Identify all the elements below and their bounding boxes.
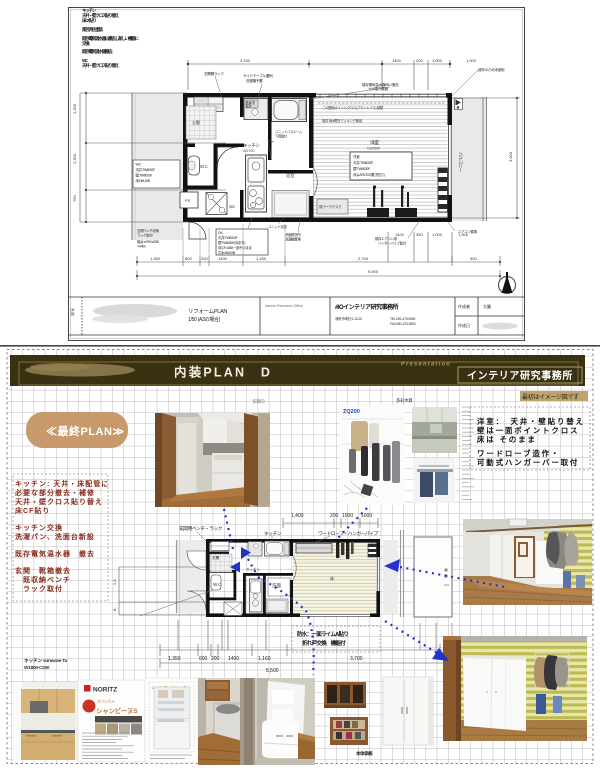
svg-text:本体価格: 本体価格 [356,750,373,757]
svg-text:リフォームPLAN: リフォームPLAN [188,308,227,315]
svg-text:玄関 靴箱撤去: 玄関 靴箱撤去 [15,566,71,575]
svg-text:大圖: 大圖 [483,303,491,309]
svg-text:既存電気温水器 撤去: 既存電気温水器 撤去 [15,549,95,558]
svg-text:×H400: ×H400 [137,245,146,249]
svg-text:天井:TW6002F: 天井:TW6002F [136,167,156,172]
svg-text:バルコニー: バルコニー [458,152,463,173]
svg-text:玄関棚ラック: 玄関棚ラック [204,71,224,76]
svg-text:8..: 8.. [112,607,117,611]
svg-text:作成日: 作成日 [458,322,470,328]
svg-text:1,000: 1,000 [466,58,477,63]
svg-text:1,160: 1,160 [256,256,267,261]
svg-text:既ワークデスク: 既ワークデスク [319,204,342,209]
svg-text:壁:TW6001K: 壁:TW6001K [136,173,153,178]
svg-text:玄関: 玄関 [212,555,220,560]
svg-text:浴室: 浴室 [286,172,294,179]
svg-text:WC: WC [136,163,142,167]
svg-text:内装PLAN D: 内装PLAN D [174,365,272,380]
svg-text:CH2500: CH2500 [367,147,380,151]
svg-text:ワードローブ・ハンガーパイプ: ワードローブ・ハンガーパイプ [318,530,379,537]
svg-text:インテリア研究事務所: インテリア研究事務所 [467,369,573,382]
svg-text:1,350: 1,350 [150,256,161,261]
svg-text:760: 760 [72,195,77,202]
svg-text:1,300: 1,300 [72,103,77,114]
svg-text:1,000: 1,000 [458,232,469,237]
svg-text:可動式ハンガーバー取付: 可動式ハンガーバー取付 [477,457,579,467]
svg-text:壁:TW6030F: 壁:TW6030F [353,166,371,171]
svg-text:シャンビーヌS: シャンビーヌS [96,706,138,715]
svg-text:既存エアコン用: 既存エアコン用 [375,236,397,241]
svg-text:3,700: 3,700 [350,656,363,662]
svg-text:床CF貼り: 床CF貼り [15,506,50,515]
svg-text:洗濯機置場: 洗濯機置場 [285,237,301,242]
svg-text:風呂 再生塗装: 風呂 再生塗装 [82,26,104,33]
svg-text:キッチン: 天井・床配管に: キッチン: 天井・床配管に [15,479,109,488]
svg-text:1400: 1400 [392,58,402,63]
svg-text:2,700: 2,700 [358,256,369,261]
svg-text:洗濯機予置: 洗濯機予置 [246,78,263,83]
svg-text:既存電気温水器は撤去し新しい機器に: 既存電気温水器は撤去し新しい機器に [82,35,140,42]
svg-text:経年のため未使用: 経年のため未使用 [478,67,505,72]
svg-text:1,350: 1,350 [168,656,181,662]
svg-text:ラック取付: ラック取付 [137,233,153,238]
svg-text:既存 両of開きクッキング使用: 既存 両of開きクッキング使用 [322,118,362,123]
svg-text:下関取付: 下関取付 [275,134,288,139]
svg-text:既収納ベンチ: 既収納ベンチ [15,575,71,584]
svg-text:天井:TW6002F: 天井:TW6002F [353,160,374,165]
svg-text:天井・壁クロス貼り替え: 天井・壁クロス貼り替え [15,497,103,506]
svg-text:1,000: 1,000 [432,232,443,237]
svg-text:200: 200 [330,513,339,519]
svg-text:天井:TW6002F: 天井:TW6002F [218,235,238,240]
svg-text:600: 600 [185,256,192,261]
svg-text:350: 350 [416,232,423,237]
svg-text:ハンガーパイプ取付: ハンガーパイプ取付 [378,241,407,246]
svg-text:#IOインテリア研究事務所: #IOインテリア研究事務所 [335,303,399,311]
svg-text:1400: 1400 [228,656,239,662]
svg-text:壁:TW6030F(派あり): 壁:TW6030F(派あり) [218,240,245,245]
svg-text:TEL:051-474-0592: TEL:051-474-0592 [390,317,415,321]
svg-text:既存電気温水器撤去: 既存電気温水器撤去 [82,48,113,55]
svg-text:キッチン: キッチン [246,567,260,572]
svg-text:1000: 1000 [342,513,353,519]
svg-text:≪最終PLAN≫: ≪最終PLAN≫ [46,424,124,438]
svg-text:巾木:HM-008: 巾木:HM-008 [218,250,235,255]
svg-text:玄関ベンチ収納: 玄関ベンチ収納 [137,228,160,233]
svg-text:W1800-C200: W1800-C200 [24,665,50,671]
svg-text:1,400: 1,400 [291,513,304,519]
svg-text:W2700: W2700 [243,149,254,153]
svg-text:洗濯パン、洗面台新設: 洗濯パン、洗面台新設 [15,532,95,541]
svg-text:名前: 名前 [70,308,76,316]
svg-text:キッチン: キッチン [243,143,260,148]
svg-text:ZQ200: ZQ200 [343,409,360,415]
svg-text:200: 200 [211,656,220,662]
svg-text:床:HM-10B: 床:HM-10B [136,178,151,183]
svg-text:防水：一面ライムA貼り: 防水：一面ライムA貼り [297,630,348,638]
svg-text:200: 200 [416,58,423,63]
svg-text:3,000: 3,000 [508,151,513,162]
svg-text:ラック取付: ラック取付 [15,584,63,593]
svg-text:作成者: 作成者 [458,303,470,309]
svg-text:3,150: 3,150 [240,58,251,63]
svg-text:床は そのまま: 床は そのまま [477,434,537,444]
svg-text:NORITZ: NORITZ [93,687,117,694]
svg-text:面台: 面台 [246,104,252,109]
svg-text:床 CF貼り: 床 CF貼り [82,17,96,24]
svg-text:565: 565 [229,205,235,209]
svg-text:1400: 1400 [218,256,228,261]
svg-text:1,300: 1,300 [72,153,77,164]
svg-text:必要な部分撤去・補修: 必要な部分撤去・補修 [14,488,95,497]
svg-text:1400: 1400 [395,232,405,237]
svg-text:多目的: 多目的 [252,398,265,405]
svg-text:2,5..: 2,5.. [112,577,117,585]
svg-text:浦安市明日1-13-20: 浦安市明日1-13-20 [335,316,362,321]
svg-text:サイドテーブル置例: サイドテーブル置例 [243,73,273,78]
svg-text:玄関用ベンチ・ラック: 玄関用ベンチ・ラック [179,525,223,532]
svg-text:1,000: 1,000 [432,58,443,63]
svg-text:9,500: 9,500 [368,269,379,274]
svg-text:PS: PS [185,198,191,203]
svg-text:Presentation: Presentation [401,362,451,368]
svg-text:FAX:051-474-0593: FAX:051-474-0593 [390,322,416,326]
svg-text:1,160: 1,160 [258,656,271,662]
svg-text:DK: DK [218,231,224,235]
svg-text:600: 600 [199,656,208,662]
svg-text:ユニットバスルーム: ユニットバスルーム [275,129,303,134]
svg-text:洗面: 洗面 [272,582,281,589]
svg-text:オリジナル: オリジナル [97,699,115,704]
svg-text:洋室: 洋室 [370,139,379,146]
svg-text:九州電力電器: 九州電力電器 [368,86,388,91]
svg-text:床:(LAYNTXX置き貼り): 床:(LAYNTXX置き貼り) [353,172,385,177]
svg-text:1/50 (A3の場合): 1/50 (A3の場合) [188,316,221,323]
svg-text:キッチン交換: キッチン交換 [15,523,63,532]
svg-text:天井・壁 クロス貼り替え: 天井・壁 クロス貼り替え [82,62,120,69]
svg-text:この壁面ポイントクロス(プラントバス) 貼替: この壁面ポイントクロス(プラントバス) 貼替 [322,105,384,110]
svg-text:洋室： 天井・壁貼り替え: 洋室： 天井・壁貼り替え [477,416,585,426]
svg-text:Interior Research Office: Interior Research Office [265,304,303,308]
svg-text:キッチン: キッチン [264,531,282,537]
svg-text:洗面脱衣所: 洗面脱衣所 [285,232,301,237]
svg-text:踏台:w750×d250: 踏台:w750×d250 [137,239,159,244]
svg-text:土間: 土間 [192,120,200,125]
svg-text:壁は一面ポイントクロス: 壁は一面ポイントクロス [477,425,579,435]
svg-text:W.C: W.C [213,582,222,587]
svg-text:床:CF-4438 一部そのまま: 床:CF-4438 一部そのまま [218,245,253,250]
svg-text:W.C: W.C [200,164,208,169]
svg-text:折れ戸交換 機能付: 折れ戸交換 機能付 [302,639,346,647]
svg-text:洋室: 洋室 [353,154,360,159]
svg-text:200: 200 [201,256,208,261]
svg-text:900: 900 [470,256,477,261]
svg-text:多彩木目: 多彩木目 [396,397,412,404]
svg-text:5,500: 5,500 [266,668,279,674]
svg-text:ワードローブ造作・: ワードローブ造作・ [477,448,560,458]
svg-text:床: 床 [330,575,334,581]
svg-text:キッチン sunwave Ta: キッチン sunwave Ta [24,658,67,664]
svg-text:最初はイメージ図です: 最初はイメージ図です [522,393,579,401]
svg-text:ユニット浴室: ユニット浴室 [268,224,287,229]
